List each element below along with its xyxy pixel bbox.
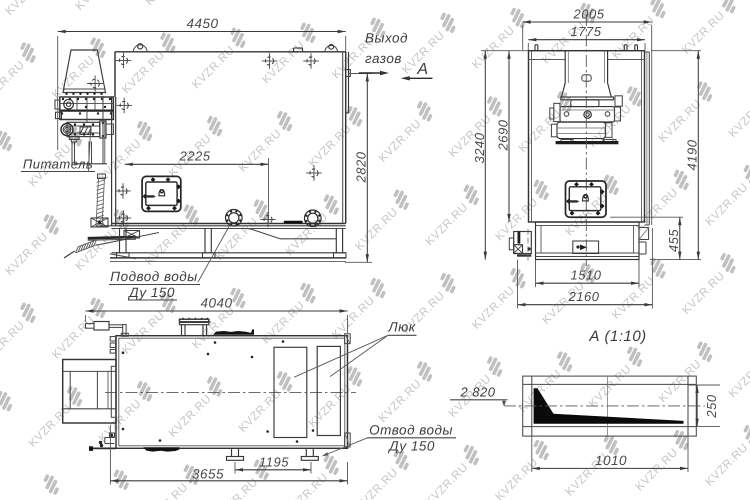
- svg-text:А (1:10): А (1:10): [588, 328, 646, 345]
- svg-text:Люк: Люк: [387, 320, 415, 335]
- svg-text:1010: 1010: [595, 453, 627, 468]
- svg-text:250: 250: [704, 394, 719, 418]
- svg-text:4450: 4450: [186, 16, 218, 31]
- svg-text:1775: 1775: [571, 24, 602, 39]
- svg-text:2820: 2820: [354, 151, 369, 183]
- svg-text:Выход: Выход: [365, 31, 408, 46]
- svg-text:4190: 4190: [685, 139, 700, 170]
- svg-text:2 820: 2 820: [459, 385, 495, 400]
- svg-text:4040: 4040: [200, 296, 232, 311]
- svg-text:455: 455: [666, 229, 681, 252]
- svg-text:2225: 2225: [179, 149, 211, 164]
- svg-text:3240: 3240: [472, 132, 487, 163]
- svg-text:А: А: [416, 61, 428, 78]
- svg-text:Ду 150: Ду 150: [127, 285, 175, 300]
- svg-text:Ду 150: Ду 150: [387, 439, 435, 454]
- svg-text:газов: газов: [365, 51, 402, 66]
- svg-text:Подвод воды: Подвод воды: [110, 269, 197, 284]
- svg-text:3655: 3655: [192, 466, 224, 481]
- svg-text:1510: 1510: [571, 268, 602, 283]
- svg-text:1195: 1195: [259, 454, 289, 469]
- svg-text:2005: 2005: [573, 7, 605, 22]
- svg-text:2690: 2690: [496, 119, 511, 151]
- svg-text:Отвод воды: Отвод воды: [369, 423, 453, 438]
- svg-text:2160: 2160: [568, 289, 600, 304]
- svg-text:Питатель: Питатель: [23, 157, 93, 172]
